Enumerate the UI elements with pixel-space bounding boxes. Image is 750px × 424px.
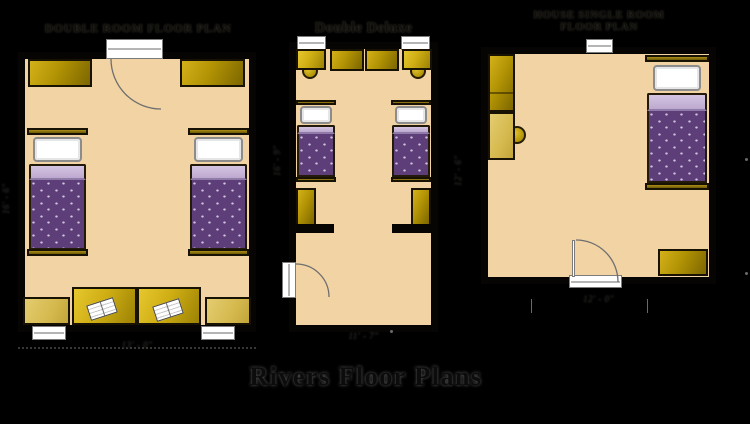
dresser-right: [411, 188, 431, 226]
blanket: [647, 111, 707, 183]
single-room-title-line2: FLOOR PLAN: [488, 21, 710, 33]
dimension-tick: [745, 158, 748, 161]
pillow: [653, 65, 701, 91]
double-deluxe-title: Double Deluxe: [289, 20, 438, 37]
headboard: [645, 55, 709, 62]
door-top: [106, 39, 163, 59]
footboard: [645, 183, 709, 190]
blanket-fold: [647, 93, 707, 111]
footboard: [296, 177, 336, 182]
wardrobe-right: [180, 59, 245, 87]
partition-stub-left: [289, 224, 334, 233]
footboard: [188, 249, 249, 256]
blanket-fold: [190, 164, 247, 180]
door-swing-icon: [107, 59, 161, 109]
book-icon: [152, 298, 184, 322]
blanket: [392, 134, 430, 177]
pillow: [300, 106, 332, 124]
blanket: [29, 180, 86, 250]
desk-top-right: [402, 49, 432, 70]
wardrobe-left: [28, 59, 92, 87]
bed-right: [188, 128, 249, 256]
dresser-bottom-right: [205, 297, 251, 325]
single-room-width-dimension: 12' - 0": [481, 294, 716, 304]
wardrobe: [488, 54, 515, 112]
wardrobe-center-right: [365, 49, 399, 71]
pillow: [395, 106, 427, 124]
desk-right: [137, 287, 201, 325]
headboard: [27, 128, 88, 135]
pillow: [33, 137, 82, 162]
door-leaf: [572, 240, 575, 277]
door-swing-icon: [296, 264, 329, 297]
double-room-height-dimension: 16' - 6": [1, 143, 11, 255]
bed-right: [391, 100, 431, 182]
window-bottom-left: [32, 326, 66, 340]
door-swing-icon: [576, 240, 618, 282]
headboard: [391, 100, 431, 105]
blanket-fold: [392, 125, 430, 134]
window-top-right: [401, 36, 430, 50]
blanket-fold: [297, 125, 335, 134]
rivers-floor-plans-sheet: DOUBLE ROOM FLOOR PLAN 13' - 0" 16' - 6"…: [0, 0, 750, 424]
double-room-width-dimension: 13' - 0": [18, 340, 256, 350]
window-top: [586, 39, 613, 53]
double-deluxe-height-dimension: 16' - 9": [272, 105, 282, 217]
headboard: [296, 100, 336, 105]
double-room-title: DOUBLE ROOM FLOOR PLAN: [20, 21, 256, 36]
dresser-left: [296, 188, 316, 226]
footboard: [391, 177, 431, 182]
desk-top-left: [296, 49, 326, 70]
desk: [488, 112, 515, 160]
single-room-height-dimension: 12' - 6": [453, 123, 463, 218]
sheet-title: Rivers Floor Plans: [0, 362, 732, 392]
footboard: [27, 249, 88, 256]
headboard: [188, 128, 249, 135]
dimension-tick: [745, 272, 748, 275]
single-room-title-line1: HOUSE SINGLE ROOM: [488, 9, 710, 21]
dresser: [658, 249, 708, 276]
bed-left: [27, 128, 88, 256]
blanket: [190, 180, 247, 250]
double-deluxe-width-dimension: 11' - 7": [289, 331, 438, 341]
dimension-tick: [390, 330, 393, 333]
door-left: [282, 262, 296, 298]
book-icon: [86, 297, 118, 321]
bed-left: [296, 100, 336, 182]
dresser-bottom-left: [23, 297, 70, 325]
shelf-line: [490, 92, 513, 94]
window-bottom-right: [201, 326, 235, 340]
blanket-fold: [29, 164, 86, 180]
bed: [645, 55, 709, 190]
desk-left: [72, 287, 137, 325]
wardrobe-center-left: [330, 49, 364, 71]
pillow: [194, 137, 243, 162]
partition-stub-right: [392, 224, 438, 233]
window-top-left: [297, 36, 326, 50]
blanket: [297, 134, 335, 177]
